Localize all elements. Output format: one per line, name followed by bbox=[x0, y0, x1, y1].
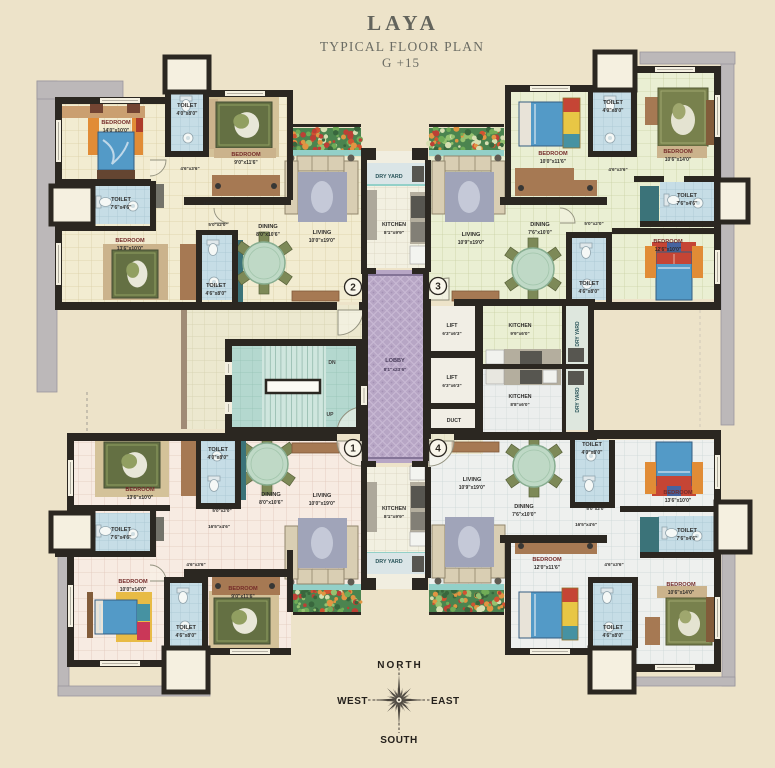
svg-text:SOUTH: SOUTH bbox=[380, 735, 418, 746]
svg-text:TYPICAL FLOOR PLAN: TYPICAL FLOOR PLAN bbox=[320, 39, 484, 54]
svg-text:LAYA: LAYA bbox=[367, 11, 439, 35]
svg-text:NORTH: NORTH bbox=[377, 660, 423, 671]
svg-text:G +15: G +15 bbox=[382, 55, 420, 70]
svg-text:EAST: EAST bbox=[431, 696, 460, 707]
svg-text:WEST: WEST bbox=[337, 696, 368, 707]
